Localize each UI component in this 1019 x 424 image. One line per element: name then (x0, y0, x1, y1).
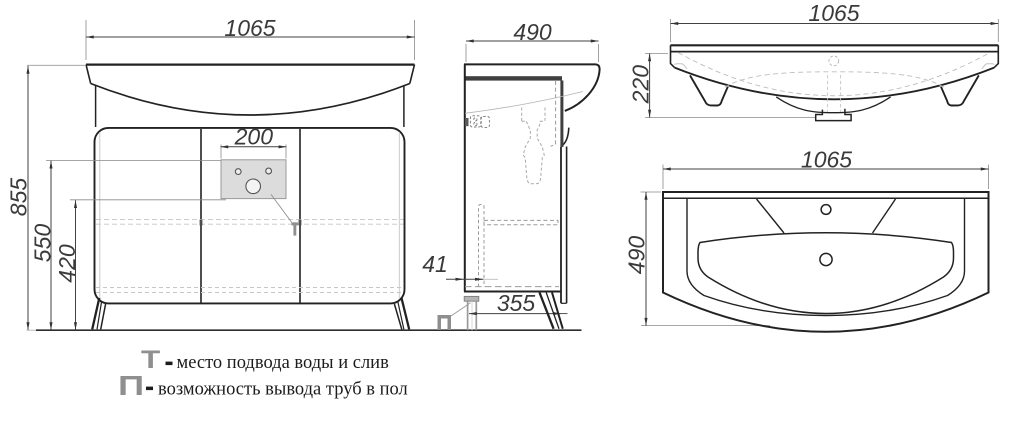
svg-text:1065: 1065 (801, 146, 852, 172)
svg-text:490: 490 (624, 236, 650, 275)
svg-text:355: 355 (497, 290, 536, 316)
svg-text:место подвода воды и слив: место подвода воды и слив (177, 353, 390, 373)
svg-text:220: 220 (628, 65, 654, 105)
svg-text:420: 420 (54, 244, 80, 283)
svg-text:П: П (118, 370, 144, 401)
svg-text:возможность вывода труб в пол: возможность вывода труб в пол (158, 380, 408, 400)
svg-text:200: 200 (234, 123, 274, 149)
svg-text:550: 550 (30, 224, 56, 263)
svg-text:1065: 1065 (808, 0, 859, 26)
svg-text:1065: 1065 (224, 15, 275, 41)
svg-text:855: 855 (6, 178, 32, 217)
svg-text:490: 490 (513, 19, 552, 45)
svg-text:41: 41 (422, 251, 448, 277)
